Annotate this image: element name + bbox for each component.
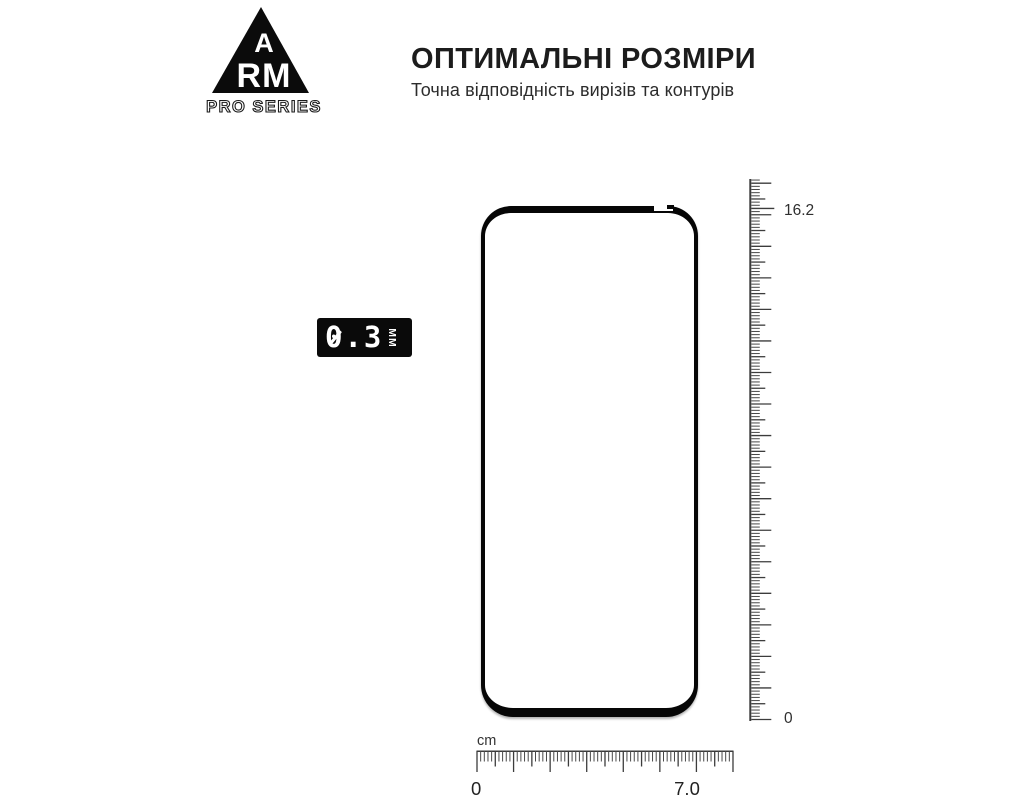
header: ОПТИМАЛЬНІ РОЗМІРИ Точна відповідність в… [411, 44, 756, 100]
speaker-notch-step [667, 205, 674, 209]
page-title: ОПТИМАЛЬНІ РОЗМІРИ [411, 44, 756, 75]
vertical-ruler-zero-label: 0 [784, 710, 793, 728]
glass-outline [481, 206, 698, 717]
horizontal-ruler [475, 750, 737, 780]
thickness-unit: ММ [387, 328, 397, 348]
logo-letters-rm: RM [237, 57, 292, 95]
horizontal-ruler-max-label: 7.0 [672, 779, 702, 799]
horizontal-ruler-zero-label: 0 [471, 779, 481, 799]
logo-series-label: PRO SERIES [206, 98, 322, 116]
page-subtitle: Точна відповідність вирізів та контурів [411, 80, 756, 100]
logo-letter-a: A [254, 28, 274, 58]
vertical-ruler [749, 176, 785, 726]
thickness-unit-wrap: ММ [384, 318, 400, 357]
vertical-ruler-max-label: 16.2 [784, 202, 814, 220]
thickness-badge: 0.3 ММ [317, 318, 412, 357]
horizontal-ruler-unit-label: cm [477, 733, 496, 749]
product-infographic: A RM PRO SERIES ОПТИМАЛЬНІ РОЗМІРИ Точна… [0, 0, 1024, 800]
brand-logo: A RM PRO SERIES [200, 5, 330, 117]
